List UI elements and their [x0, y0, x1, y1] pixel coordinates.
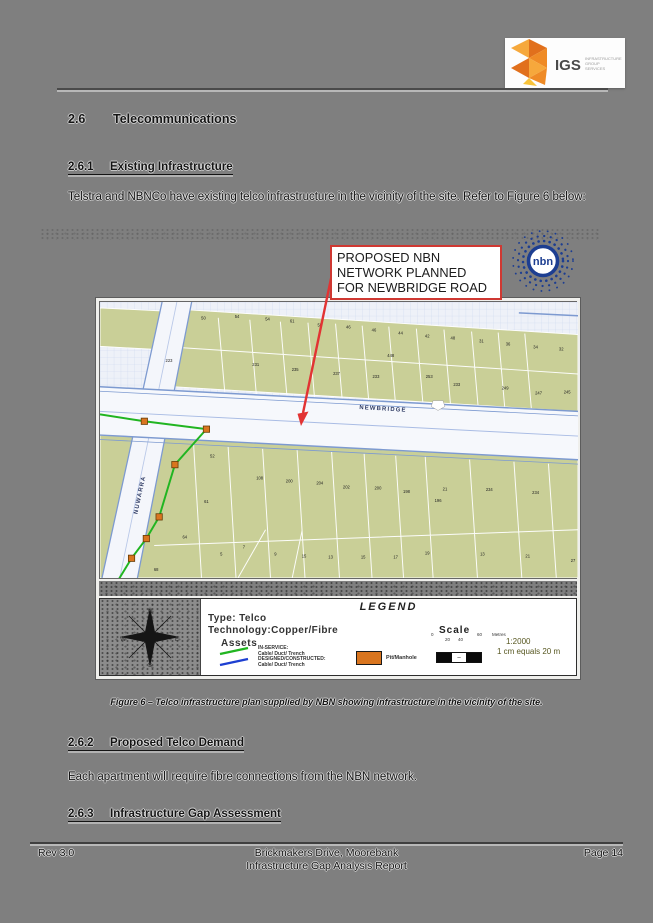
lot-number: 200: [374, 485, 382, 490]
pit-icon: [128, 555, 134, 561]
lot-number: 233: [453, 382, 461, 387]
lot-number: 36: [506, 341, 511, 346]
lot-number: 50: [201, 316, 206, 321]
scale-bar: –: [436, 652, 482, 663]
legend-item-label: Cable/ Duct/ Trench: [258, 662, 326, 668]
paragraph-telco-demand: Each apartment will require fibre connec…: [68, 770, 595, 785]
section-number: 2.6.1: [68, 161, 110, 173]
compass-panel: N E S W: [100, 599, 201, 675]
scale-tick: 60: [477, 632, 482, 637]
lot-number: 198: [403, 489, 411, 494]
lot-number: 231: [252, 362, 260, 367]
lot-number: 448: [387, 353, 395, 358]
legend-type: Type: Telco: [208, 613, 266, 624]
lot-number: 27: [571, 558, 576, 563]
legend-technology: Technology:Copper/Fibre: [208, 625, 338, 636]
section-title: Existing Infrastructure: [110, 161, 233, 173]
lot-number: 32: [559, 346, 564, 351]
pit-swatch-icon: [356, 651, 382, 665]
igs-subtext: INFRASTRUCTURE GROUP SERVICES: [585, 56, 622, 71]
igs-subtext-line: SERVICES: [585, 66, 622, 71]
scale-bar-segment: [437, 653, 452, 662]
igs-logo: IGS INFRASTRUCTURE GROUP SERVICES: [505, 38, 625, 88]
scale-ratio: 1:2000: [506, 637, 530, 646]
section-number: 2.6.3: [68, 808, 110, 820]
footer-page-number: Page 14: [584, 847, 623, 859]
lot-number: 13: [328, 554, 333, 559]
lot-number: 204: [316, 480, 324, 485]
scale-bar-segment: –: [452, 653, 467, 662]
lot-number: 234: [486, 487, 494, 492]
lot-number: 245: [564, 390, 572, 395]
scale-bar-segment: [466, 653, 481, 662]
scale-tick: 40: [458, 637, 463, 642]
in-service-line-icon: [218, 646, 250, 656]
map-legend: N E S W LEGEND Type: Telco Technology:Co…: [99, 598, 577, 676]
arrow-shaft: [303, 269, 333, 413]
pit-icon: [203, 426, 209, 432]
compass-w: W: [120, 637, 126, 643]
scan-noise-strip: [99, 581, 577, 596]
lot-number: 223: [166, 358, 174, 363]
paragraph-existing-infrastructure: Telstra and NBNCo have existing telco in…: [68, 190, 595, 205]
scale-tick: 20: [445, 637, 450, 642]
callout-line: PROPOSED NBN: [337, 250, 495, 265]
section-heading-2-6: 2.6 Telecommunications: [68, 112, 236, 126]
section-title: Telecommunications: [113, 112, 236, 126]
callout-line: FOR NEWBRIDGE ROAD: [337, 280, 495, 295]
legend-content: LEGEND Type: Telco Technology:Copper/Fib…: [201, 599, 576, 675]
section-title: Infrastructure Gap Assessment: [110, 808, 281, 820]
lot-number: 48: [451, 335, 456, 340]
footer-title: Brickmakers Drive, Moorebank Infrastruct…: [0, 847, 653, 873]
lot-number: 19: [425, 550, 430, 555]
lot-number: 234: [532, 490, 540, 495]
lot-number: 44: [398, 331, 403, 336]
lot-number: 108: [256, 475, 264, 480]
scale-equivalence: 1 cm equals 20 m: [497, 647, 560, 656]
igs-triangle-icon: [511, 39, 529, 58]
lot-number: 233: [373, 374, 381, 379]
lot-number: 61: [204, 499, 209, 504]
footer-title-line: Infrastructure Gap Analysis Report: [0, 860, 653, 873]
lot-number: 200: [286, 478, 294, 483]
arrow-head: [298, 412, 309, 427]
lot-number: 42: [425, 333, 430, 338]
section-heading-2-6-2: 2.6.2 Proposed Telco Demand: [68, 737, 244, 751]
scale-tick: 0: [431, 632, 434, 637]
lot-number: 249: [502, 386, 510, 391]
scale-label: Scale: [439, 625, 470, 636]
lot-number: 17: [393, 554, 398, 559]
legend-item-designed: DESIGNED/CONSTRUCTED: Cable/ Duct/ Trenc…: [258, 656, 326, 668]
pit-icon: [172, 461, 178, 467]
nbn-callout-box: PROPOSED NBN NETWORK PLANNED FOR NEWBRID…: [330, 245, 502, 300]
compass-s: S: [148, 663, 152, 668]
header-rule: [57, 88, 608, 90]
parcel-top-left: [100, 308, 161, 349]
lot-number: 13: [480, 551, 485, 556]
lot-number: 253: [426, 374, 434, 379]
lot-number: 247: [535, 391, 543, 396]
lot-number: 21: [525, 553, 530, 558]
section-heading-2-6-3: 2.6.3 Infrastructure Gap Assessment: [68, 808, 281, 822]
section-heading-2-6-1: 2.6.1 Existing Infrastructure: [68, 161, 233, 175]
igs-acronym: IGS: [555, 57, 581, 74]
lot-number: 21: [443, 486, 448, 491]
lot-number: 46: [372, 328, 377, 333]
compass-n: N: [148, 609, 152, 615]
section-number: 2.6: [68, 112, 113, 126]
lot-number: 31: [479, 338, 484, 343]
pit-icon: [143, 535, 149, 541]
nbn-wordmark: nbn: [533, 256, 553, 268]
igs-triangle-icon: [511, 58, 529, 78]
lot-number: 52: [210, 454, 215, 459]
lot-number: 15: [302, 553, 307, 558]
legend-title: LEGEND: [201, 601, 576, 613]
report-page: IGS INFRASTRUCTURE GROUP SERVICES 2.6 Te…: [0, 0, 653, 923]
pit-icon: [141, 418, 147, 424]
figure-caption: Figure 6 – Telco infrastructure plan sup…: [0, 697, 653, 707]
lot-number: 64: [182, 535, 187, 540]
legend-pit-label: Pit/Manhole: [386, 655, 417, 661]
lot-number: 15: [361, 554, 366, 559]
footer-rule: [30, 842, 623, 844]
lot-number: 196: [435, 498, 443, 503]
lot-number: 202: [343, 484, 351, 489]
compass-e: E: [175, 637, 179, 643]
pit-icon: [156, 514, 162, 520]
footer-title-line: Brickmakers Drive, Moorebank: [0, 847, 653, 860]
designed-line-icon: [218, 657, 250, 667]
lot-number: 68: [154, 567, 159, 572]
lot-number: 34: [533, 344, 538, 349]
nbn-logo-icon: nbn: [506, 228, 580, 294]
compass-rose-icon: N E S W: [119, 606, 181, 668]
lot-number: 54: [235, 314, 240, 319]
section-title: Proposed Telco Demand: [110, 737, 244, 749]
section-number: 2.6.2: [68, 737, 110, 749]
lot-number: 54: [265, 317, 270, 322]
callout-line: NETWORK PLANNED: [337, 265, 495, 280]
scale-units: Metres: [492, 632, 506, 637]
